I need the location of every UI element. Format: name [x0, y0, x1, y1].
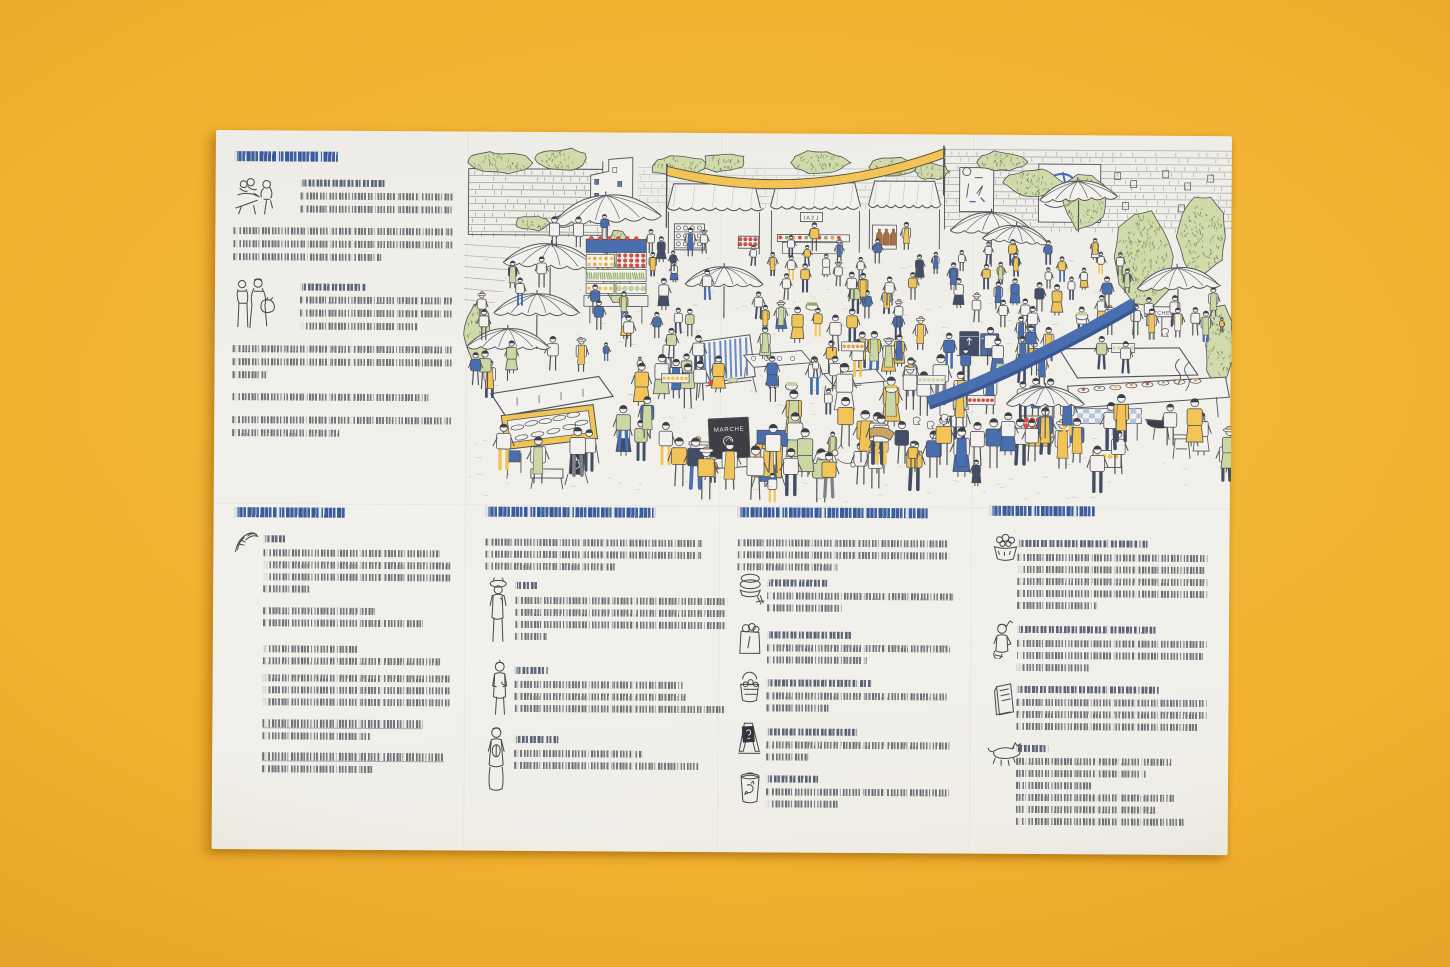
- svg-text:I A 2 J: I A 2 J: [803, 216, 818, 222]
